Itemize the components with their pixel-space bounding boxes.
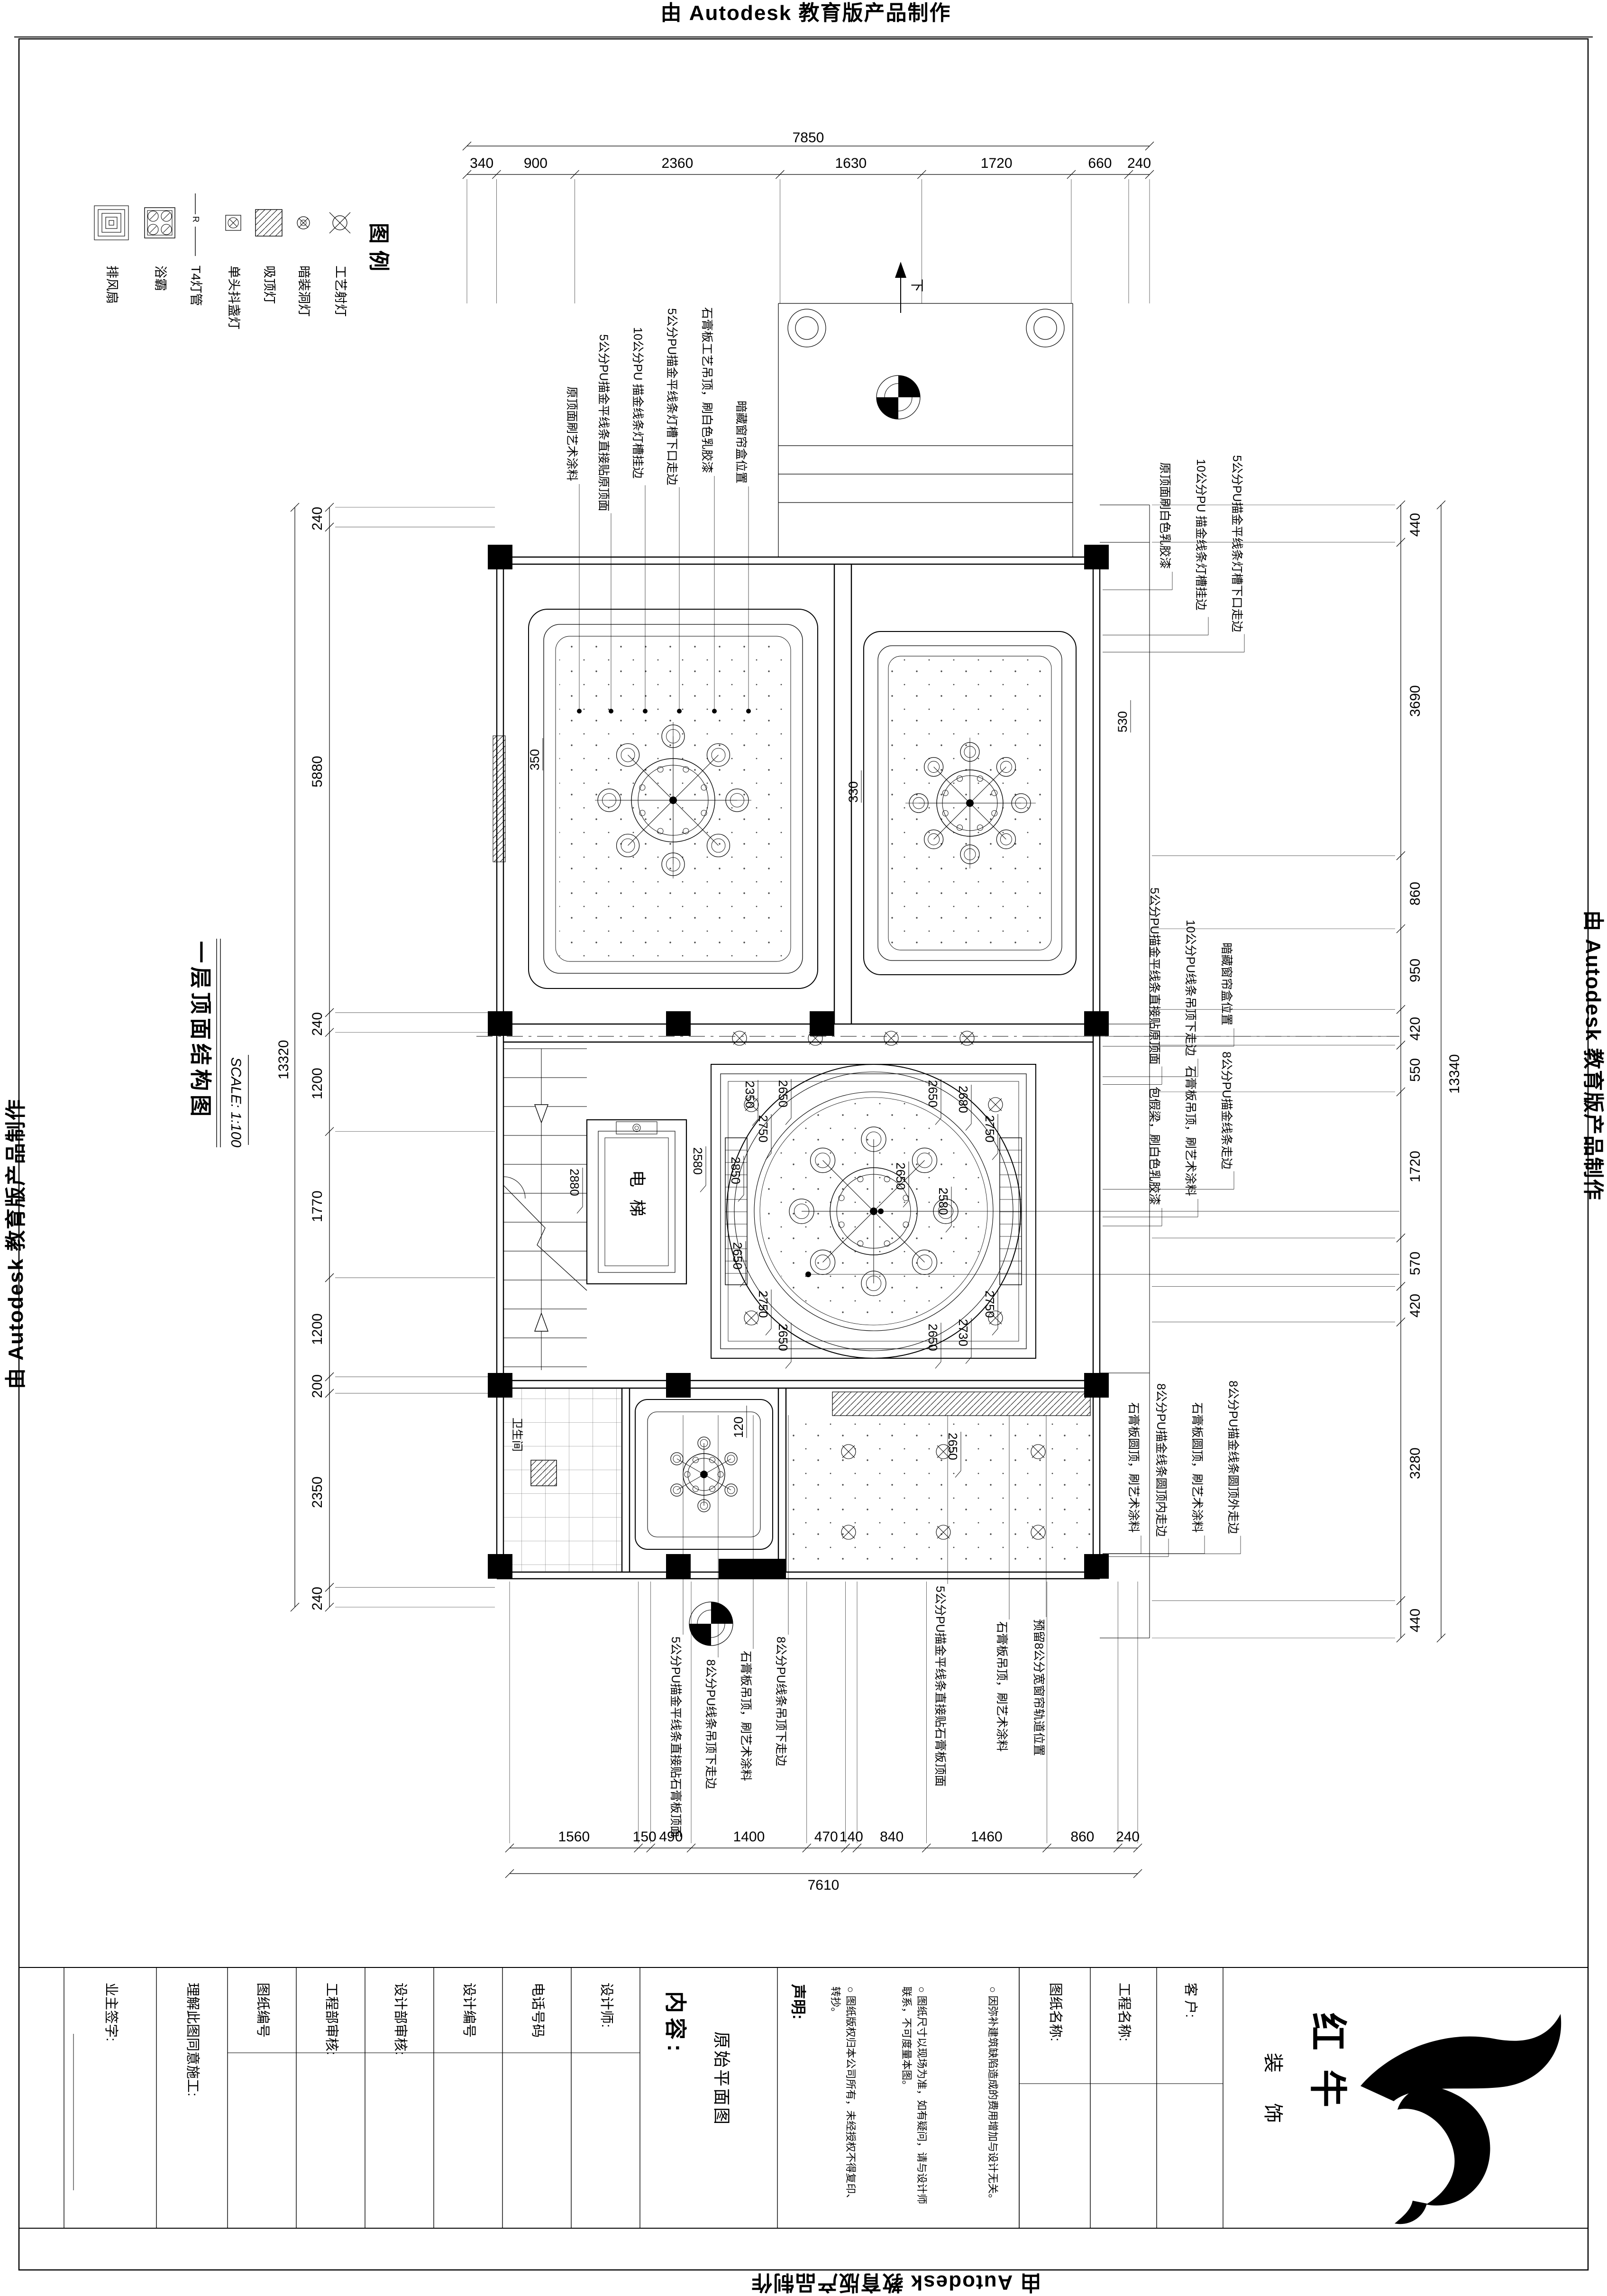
declaration-bullet: ○ 图纸版权归本公司所有，未经授权不得复印、转抄。 xyxy=(825,1986,858,2205)
annotation: 暗藏窗帘盒位置 xyxy=(735,401,747,484)
line xyxy=(704,1474,731,1490)
annotation: 10公分PU 描金线条灯槽挂边 xyxy=(1195,459,1206,610)
titleblock-field-label: 设计编号 xyxy=(462,1983,475,2038)
dim-segment: 570 xyxy=(1408,1252,1423,1275)
stamp-bottom: 由 Autodesk 教育版产品制作 xyxy=(678,2272,1114,2293)
level-mark: 2650 xyxy=(731,1242,744,1270)
titleblock-content-label: 内容: xyxy=(665,1991,686,2056)
titleblock-field-label: 业主签字: xyxy=(104,1983,118,2041)
level-mark: 2650 xyxy=(927,1080,939,1107)
line xyxy=(785,1118,791,1125)
level-mark: 2350 xyxy=(744,1081,756,1108)
dim-segment: 420 xyxy=(1408,1017,1423,1041)
line xyxy=(935,1362,941,1368)
dim-segment: 3690 xyxy=(1408,685,1423,717)
circle xyxy=(609,709,613,713)
level-mark: 2750 xyxy=(757,1115,769,1143)
dim-segment: 840 xyxy=(858,1830,925,1844)
annotation: 10公分PU 描金线条灯槽挂边 xyxy=(631,327,643,478)
annotation: 石膏板圆顶，刷艺术涂料 xyxy=(1127,1402,1139,1533)
line xyxy=(992,1153,998,1160)
level-mark: 2650 xyxy=(927,1324,939,1351)
annotation: 5公分PU描金平线条灯槽下口走边 xyxy=(1231,455,1242,632)
small-dim: 530 xyxy=(1116,711,1129,732)
circle xyxy=(643,709,648,713)
logo-suffix: 装饰 xyxy=(1263,2053,1283,2153)
level-mark: 2650 xyxy=(777,1080,789,1107)
dim-segment: 1720 xyxy=(1408,1151,1423,1183)
legend-symbol-r: R xyxy=(192,216,200,222)
titleblock-field-label: 图纸名称: xyxy=(1048,1983,1062,2041)
line xyxy=(700,1185,706,1192)
level-mark: 2750 xyxy=(757,1290,769,1318)
dim-total: 7610 xyxy=(785,1878,861,1893)
rect xyxy=(94,206,128,240)
rect xyxy=(145,208,175,238)
level-mark: 2680 xyxy=(957,1086,969,1113)
circle xyxy=(577,709,582,713)
line xyxy=(966,1124,971,1130)
annotation: 石膏板吊顶，刷艺术涂料 xyxy=(740,1651,751,1781)
column xyxy=(666,1554,691,1579)
annotation: 10公分PU线条吊顶下走边 xyxy=(1184,920,1196,1056)
annotation: 5公分PU描金平线条直接贴原顶面 xyxy=(597,334,609,512)
annotation: 5公分PU描金平线条直接贴原顶面 xyxy=(1148,887,1160,1065)
rect xyxy=(106,217,117,229)
level-mark: 2580 xyxy=(692,1147,704,1175)
annotation: 石膏板工艺吊顶，刷白色乳胶漆 xyxy=(701,307,712,473)
dim-segment: 240 xyxy=(310,1012,325,1036)
circle xyxy=(693,1486,698,1491)
declaration-bullet: ○ 图纸尺寸以现场为准，如有疑问，请与设计师联系，不可度量本图。 xyxy=(896,1986,929,2205)
level-mark: 2730 xyxy=(957,1319,969,1346)
circle xyxy=(677,709,682,713)
column xyxy=(1084,1373,1109,1398)
small-dim: 120 xyxy=(732,1417,745,1438)
dim-segment: 900 xyxy=(502,156,569,171)
annotation: 8公分PU描金线条圆顶外走边 xyxy=(1227,1381,1239,1534)
titleblock-field-label: 图纸编号 xyxy=(256,1983,269,2038)
column xyxy=(810,1011,834,1036)
dim-segment: 3280 xyxy=(1408,1447,1423,1479)
level-mark: 2650 xyxy=(947,1433,959,1460)
drawing-title: 一层顶面结构图 xyxy=(190,941,211,1120)
level-mark: 2650 xyxy=(895,1162,907,1190)
small-dim: 350 xyxy=(529,749,541,770)
dim-total: 13340 xyxy=(1448,1054,1462,1093)
dim-segment: 240 xyxy=(310,1587,325,1610)
rect xyxy=(102,213,121,232)
circle xyxy=(746,709,751,713)
annotation: 石膏板圆顶，刷艺术涂料 xyxy=(1191,1402,1203,1533)
bull-logo-icon xyxy=(1360,2014,1561,2224)
column xyxy=(488,545,512,569)
level-mark: 2880 xyxy=(568,1169,581,1196)
level-mark: 2750 xyxy=(984,1115,996,1143)
dim-segment: 1770 xyxy=(310,1190,325,1222)
circle xyxy=(710,1486,715,1491)
column xyxy=(488,1373,512,1398)
titleblock-field-label: 理解此图同意施工: xyxy=(185,1983,199,2096)
dim-segment: 550 xyxy=(1408,1058,1423,1082)
dim-segment: 420 xyxy=(1408,1294,1423,1317)
stamp-right: 由 Autodesk 教育版产品制作 xyxy=(1582,910,1603,1201)
line xyxy=(738,1195,744,1201)
annotation: 8公分PU描金线条圆顶内走边 xyxy=(1155,1383,1167,1537)
cad-sheet: { "stamp": { "text": "由 Autodesk 教育版产品制作… xyxy=(0,0,1607,2296)
small-dim: 330 xyxy=(847,781,860,803)
line xyxy=(677,1474,704,1490)
line xyxy=(677,1459,704,1474)
column xyxy=(666,1373,691,1398)
annotation: 5公分PU描金平线条直接贴石膏板顶面 xyxy=(669,1637,681,1838)
dim-segment: 200 xyxy=(310,1374,325,1398)
elevator-label: 电梯 xyxy=(629,1170,646,1229)
column xyxy=(1084,1011,1109,1036)
legend-label-exhaust-fan-icon: 排风扇 xyxy=(105,265,118,304)
line xyxy=(163,226,170,233)
annotation: 5公分PU描金平线条直接贴石膏板顶面 xyxy=(934,1586,946,1787)
annotation: 原顶面刷艺术涂料 xyxy=(566,386,577,481)
dim-segment: 860 xyxy=(1408,882,1423,906)
dim-segment: 240 xyxy=(1106,156,1172,171)
line xyxy=(577,1207,583,1213)
annotation: 8公分PU线条吊顶下走边 xyxy=(704,1659,716,1789)
circle xyxy=(712,709,717,713)
titleblock-field-label: 设计师: xyxy=(599,1983,613,2028)
line xyxy=(766,1153,771,1160)
column xyxy=(1084,545,1109,569)
declaration-bullet: ○ 因弥补建筑缺陷造成的费用增加与设计无关。 xyxy=(967,1986,1000,2205)
entry-direction-label: 下 xyxy=(910,279,923,292)
legend-label-single-head-lamp-icon: 单头抖盏灯 xyxy=(227,265,240,329)
rect xyxy=(109,220,114,225)
line xyxy=(150,226,156,233)
line xyxy=(766,1328,771,1335)
column xyxy=(1084,1554,1109,1579)
level-mark: 2850 xyxy=(730,1157,742,1184)
legend-label-downlight-icon: 暗装洞灯 xyxy=(297,265,310,317)
annotation: 暗藏窗帘盒位置 xyxy=(1220,942,1232,1025)
dim-segment: 240 xyxy=(310,507,325,531)
line xyxy=(150,213,156,220)
bathroom-label: 卫生间 xyxy=(511,1418,522,1452)
dim-segment: 440 xyxy=(1408,513,1423,537)
line xyxy=(740,1280,746,1287)
annotation: 8公分PU描金线条走边 xyxy=(1220,1052,1232,1170)
level-mark: 2650 xyxy=(777,1324,789,1351)
titleblock-field-label: 电话号码 xyxy=(530,1983,544,2038)
drawing-scale: SCALE: 1:100 xyxy=(228,1057,243,1147)
dim-segment: 1630 xyxy=(818,156,884,171)
line xyxy=(992,1328,998,1335)
dim-total: 7850 xyxy=(770,131,846,145)
line xyxy=(704,1459,731,1474)
annotation: 5公分PU描金平线条灯槽下口走边 xyxy=(666,308,677,485)
annotation: 石膏板吊顶，刷艺术涂料 xyxy=(1184,1066,1196,1196)
dim-segment: 950 xyxy=(1408,959,1423,982)
dim-segment: 1560 xyxy=(541,1830,607,1844)
dim-segment: 2350 xyxy=(310,1476,325,1508)
titleblock-content-value: 原始平面图 xyxy=(713,2031,730,2126)
annotation: 石膏板吊顶，刷艺术涂料 xyxy=(995,1621,1007,1752)
annotation: 8公分PU线条吊顶下走边 xyxy=(775,1637,786,1766)
annotation: 原顶面刷白色乳胶漆 xyxy=(1159,462,1170,569)
dim-segment: 1400 xyxy=(716,1830,782,1844)
annotation: 预留8公分宽窗帘轨道位置 xyxy=(1032,1619,1044,1756)
legend-symbol xyxy=(256,210,282,236)
column xyxy=(666,1011,691,1036)
legend-label-spotlight-icon: 工艺射灯 xyxy=(334,265,347,317)
logo-name: 红牛 xyxy=(1308,2012,1346,2126)
line xyxy=(163,213,170,220)
dim-total: 13320 xyxy=(277,1040,291,1079)
legend-title: 图例 xyxy=(368,223,389,278)
dim-segment: 1460 xyxy=(953,1830,1020,1844)
level-mark: 2580 xyxy=(937,1188,950,1215)
stamp-left: 由 Autodesk 教育版产品制作 xyxy=(6,1098,27,1389)
legend-label-t4-tube-icon: T4灯管 xyxy=(189,265,202,306)
circle xyxy=(710,1457,715,1463)
legend-label-ceiling-lamp-icon: 吸顶灯 xyxy=(263,265,275,304)
circle xyxy=(718,1472,723,1477)
plan-linework xyxy=(0,0,1607,2296)
titleblock-field-label: 客 户: xyxy=(1183,1983,1197,2018)
stamp-top: 由 Autodesk 教育版产品制作 xyxy=(588,3,1024,24)
annotation: 包假梁，刷白色乳胶漆 xyxy=(1148,1087,1160,1205)
line xyxy=(785,1362,791,1368)
legend-label-bath-heater-icon: 浴霸 xyxy=(154,265,166,291)
dim-segment: 5880 xyxy=(310,756,325,787)
level-mark: 2750 xyxy=(984,1290,996,1318)
titleblock-field-label: 工程部审核: xyxy=(324,1983,338,2055)
column xyxy=(488,1554,512,1579)
dim-segment: 2360 xyxy=(644,156,711,171)
circle xyxy=(685,1472,690,1477)
titleblock-field-label: 设计部审核: xyxy=(393,1983,407,2055)
dim-segment: 1720 xyxy=(963,156,1030,171)
titleblock-field-label: 工程名称: xyxy=(1117,1983,1131,2041)
dim-segment: 1200 xyxy=(310,1068,325,1100)
circle xyxy=(693,1457,698,1463)
column xyxy=(488,1011,512,1036)
dim-segment: 1200 xyxy=(310,1313,325,1345)
dim-segment: 440 xyxy=(1408,1609,1423,1632)
dim-segment: 240 xyxy=(1095,1830,1161,1844)
titleblock-declaration-title: 声明: xyxy=(791,1984,806,2020)
